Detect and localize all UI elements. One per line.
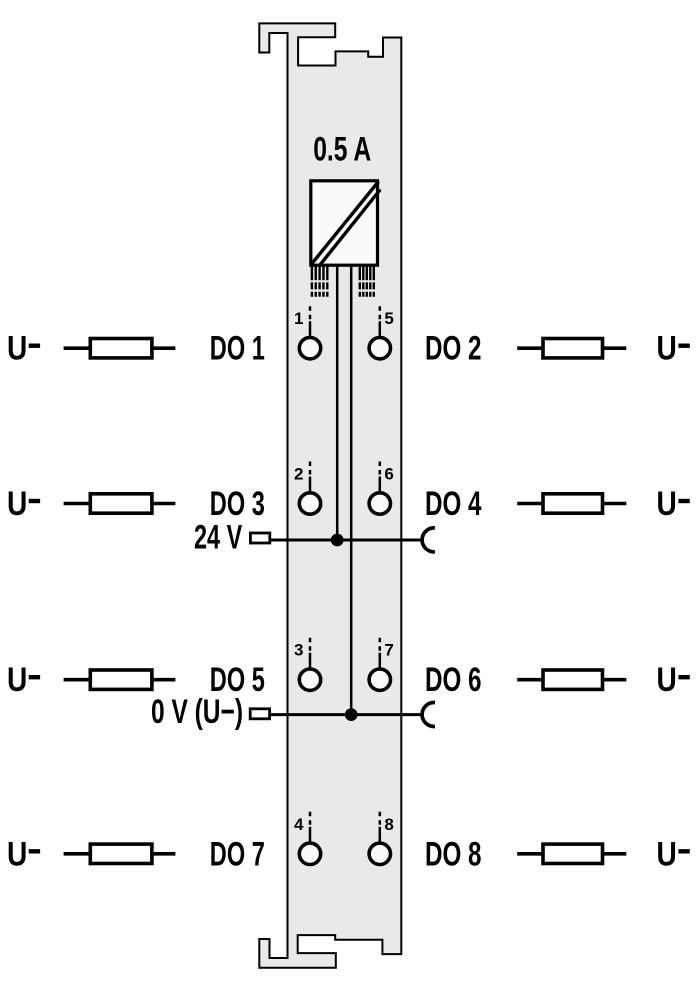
svg-text:U: U [7,661,27,699]
svg-text:U: U [657,330,677,368]
svg-text:4: 4 [294,815,304,834]
svg-text:24 V: 24 V [194,519,242,557]
svg-text:DO 2: DO 2 [425,330,482,368]
svg-text:DO 6: DO 6 [425,661,482,699]
svg-text:1: 1 [294,309,303,328]
svg-text:DO 4: DO 4 [425,485,482,523]
svg-text:U: U [7,485,27,523]
svg-text:DO 3: DO 3 [210,485,265,523]
svg-text:7: 7 [384,641,393,660]
svg-text:DO 1: DO 1 [210,330,265,368]
svg-text:DO 8: DO 8 [425,835,482,873]
svg-text:DO 7: DO 7 [210,835,265,873]
svg-text:U: U [657,661,677,699]
svg-text:U: U [7,835,27,873]
svg-text:6: 6 [384,465,393,484]
svg-text:U: U [657,485,677,523]
svg-text:8: 8 [384,815,393,834]
svg-text:0 V (U−): 0 V (U−) [151,693,243,731]
svg-text:5: 5 [384,309,393,328]
svg-text:3: 3 [294,641,303,660]
svg-text:U: U [7,330,27,368]
svg-text:U: U [657,835,677,873]
svg-text:0.5 A: 0.5 A [313,131,371,169]
svg-text:2: 2 [294,465,303,484]
